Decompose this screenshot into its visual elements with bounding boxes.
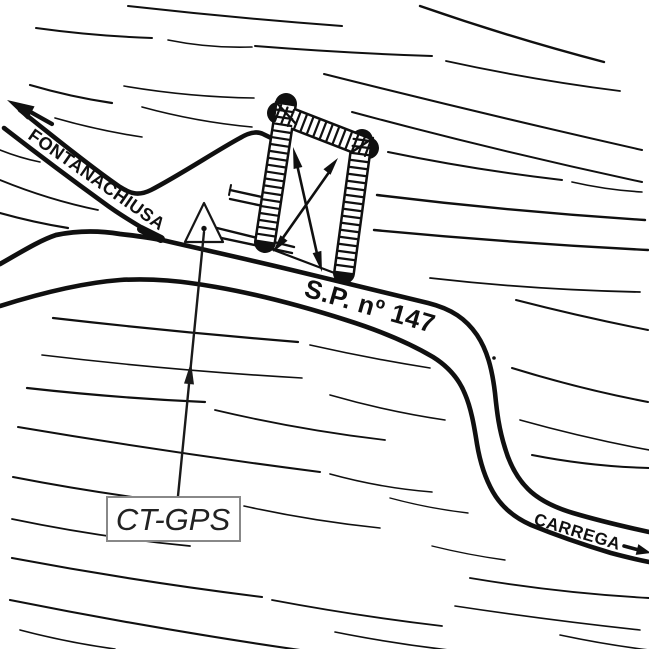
survey-sketch-map: FONTANACHIUSA S.P. nº 147 CARREGA CT-GPS xyxy=(0,0,649,649)
terrain-hatching xyxy=(0,6,649,649)
road-labels: FONTANACHIUSA S.P. nº 147 CARREGA xyxy=(25,125,623,554)
control-point-callout: CT-GPS xyxy=(107,497,240,541)
label-fontanachiusa: FONTANACHIUSA xyxy=(25,125,169,234)
sketch-map-canvas: FONTANACHIUSA S.P. nº 147 CARREGA CT-GPS xyxy=(0,0,649,649)
callout-label: CT-GPS xyxy=(116,502,231,537)
triangle-center-dot xyxy=(201,226,206,231)
